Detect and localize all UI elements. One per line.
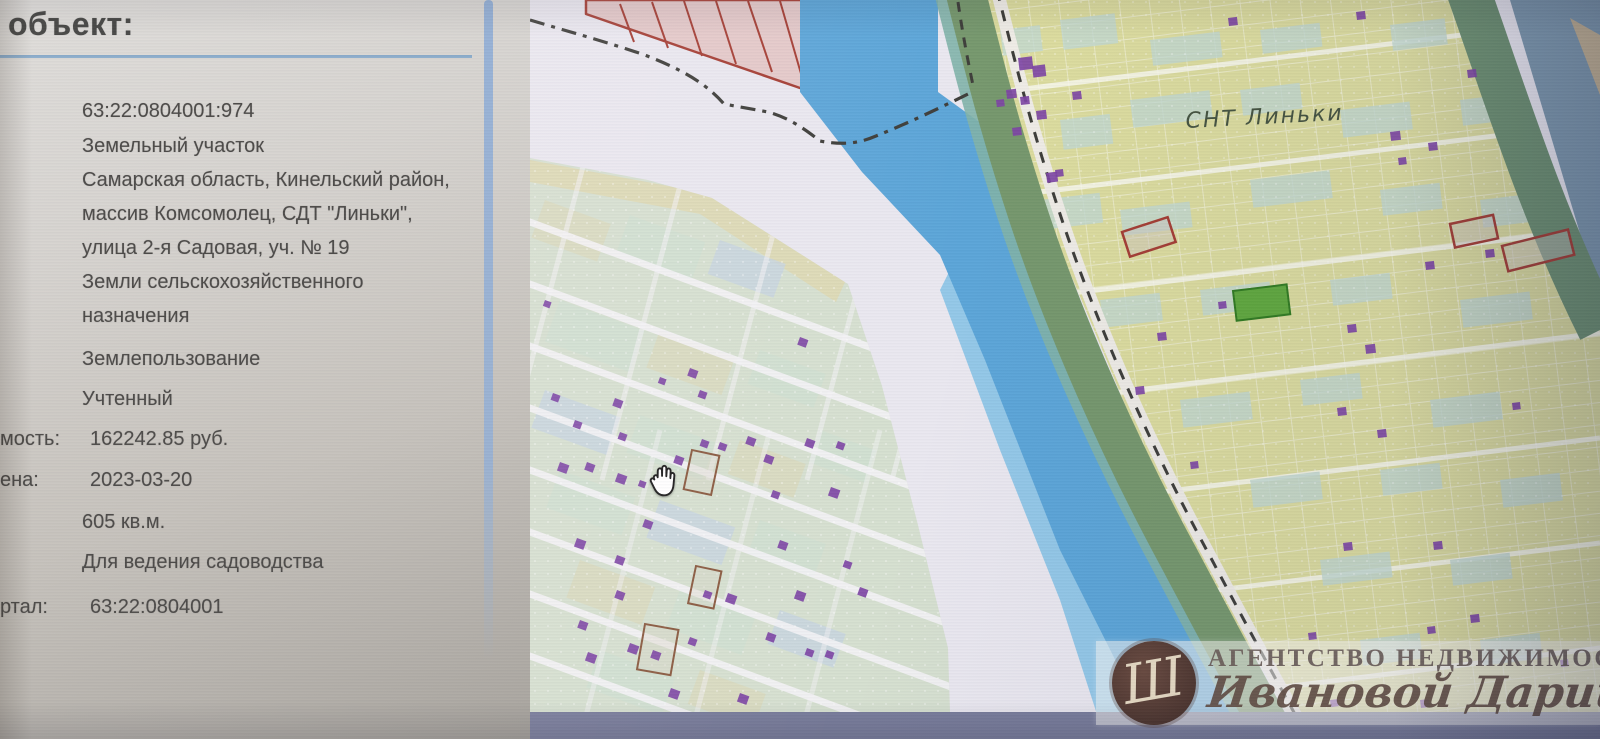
building-marker xyxy=(996,99,1005,107)
building-marker xyxy=(1347,324,1357,333)
selected-parcel-green[interactable] xyxy=(1233,284,1290,320)
screenshot-root: объект: 63:22:0804001:974Земельный участ… xyxy=(0,0,1600,739)
building-marker xyxy=(1470,614,1480,623)
building-marker xyxy=(1228,17,1238,26)
panel-scrollbar[interactable] xyxy=(484,0,493,660)
building-marker xyxy=(1427,626,1436,634)
building-marker xyxy=(1343,542,1353,551)
building-marker xyxy=(1308,632,1317,640)
building-marker xyxy=(1018,56,1033,70)
attribute-value: Для ведения садоводства xyxy=(82,545,323,579)
attribute-label: мость: xyxy=(0,422,60,456)
attribute-value: Земельный участок xyxy=(82,129,264,163)
building-marker xyxy=(1055,169,1064,177)
building-marker xyxy=(1157,332,1167,341)
attribute-label: ена: xyxy=(0,463,39,497)
building-marker xyxy=(1425,261,1435,270)
watermark-name-line: Ивановой Дарии xyxy=(1205,668,1600,718)
attribute-value: 2023-03-20 xyxy=(90,463,192,497)
attribute-value: Самарская область, Кинельский район, мас… xyxy=(82,163,456,265)
agency-logo-icon: Ш xyxy=(1112,641,1196,725)
building-marker xyxy=(1356,11,1366,20)
attribute-label: ртал: xyxy=(0,590,48,624)
building-marker xyxy=(1428,142,1438,151)
building-marker xyxy=(1485,249,1495,258)
open-hand-cursor-icon xyxy=(642,460,680,500)
building-marker xyxy=(1006,89,1017,99)
attribute-value: 162242.85 руб. xyxy=(90,422,228,456)
building-marker xyxy=(1512,402,1521,410)
building-marker xyxy=(1032,64,1046,77)
building-marker xyxy=(1433,541,1443,550)
building-marker xyxy=(1390,131,1401,141)
attribute-value: Земли сельскохозяйственного назначения xyxy=(82,265,382,333)
building-marker xyxy=(1190,461,1199,469)
attribute-value: 63:22:0804001:974 xyxy=(82,94,254,128)
watermark-text: АГЕНТСТВО НЕДВИЖИМОСТИ Ивановой Дарии xyxy=(1208,645,1600,718)
building-marker xyxy=(1398,157,1407,165)
map-canvas[interactable]: СНТ Линьки xyxy=(530,0,1600,739)
building-marker xyxy=(1467,69,1477,78)
attribute-value: 63:22:0804001 xyxy=(90,590,223,624)
attribute-value: Землепользование xyxy=(82,342,260,376)
attribute-value: 605 кв.м. xyxy=(82,505,165,539)
brown-outlined-parcel xyxy=(637,624,678,675)
cadastral-map[interactable]: СНТ Линьки Ш АГЕНТСТВО НЕДВИЖИМОСТИ Иван… xyxy=(530,0,1600,739)
attribute-value: Учтенный xyxy=(82,382,173,416)
building-marker xyxy=(1365,344,1376,354)
object-info-panel: объект: 63:22:0804001:974Земельный участ… xyxy=(0,0,532,739)
object-attributes-list: 63:22:0804001:974Земельный участокСамарс… xyxy=(0,0,530,739)
building-marker xyxy=(1012,127,1022,136)
watermark: Ш АГЕНТСТВО НЕДВИЖИМОСТИ Ивановой Дарии xyxy=(1096,641,1600,725)
building-marker xyxy=(1377,429,1387,438)
building-marker xyxy=(1020,96,1030,105)
building-marker xyxy=(1036,110,1047,120)
building-marker xyxy=(1135,386,1145,395)
building-marker xyxy=(1072,91,1082,100)
building-marker xyxy=(1218,301,1227,309)
building-marker xyxy=(1337,407,1347,416)
agency-monogram: Ш xyxy=(1119,649,1189,713)
